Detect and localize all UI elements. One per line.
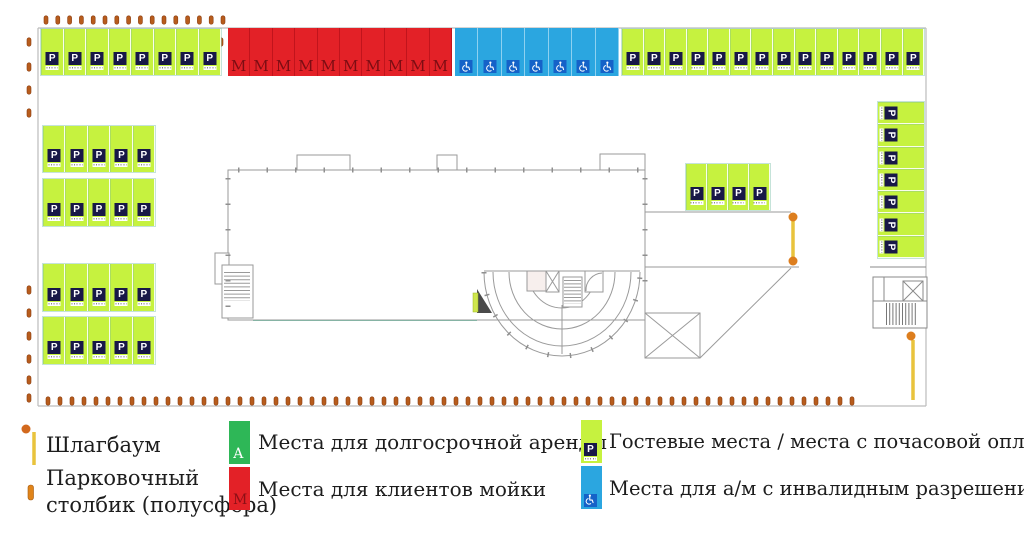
parking-spot-guest: P <box>881 29 903 75</box>
barrier-east <box>789 213 798 266</box>
parking-spot-wash: М <box>295 28 317 76</box>
parking-row-left-a1: PPPPP <box>42 125 156 173</box>
wash-letter: М <box>250 57 271 75</box>
pay-parking-icon: P <box>648 52 661 70</box>
parking-row-carwash: ММММММММММ <box>228 28 452 76</box>
pay-parking-icon: P <box>48 149 61 167</box>
parking-spot-disabled <box>455 28 478 76</box>
parking-row-mid-guest: PPPP <box>685 163 771 211</box>
pay-parking-icon: P <box>753 187 766 205</box>
pay-parking-icon: P <box>48 203 61 221</box>
pay-parking-icon: P <box>880 240 898 253</box>
pay-parking-icon: P <box>880 218 898 231</box>
pay-parking-icon: P <box>113 52 126 70</box>
pay-parking-icon: P <box>136 52 149 70</box>
parking-spot-guest: P <box>65 317 87 364</box>
pay-parking-icon: P <box>777 52 790 70</box>
parking-spot-guest: P <box>41 29 64 75</box>
parking-spot-guest: P <box>859 29 881 75</box>
parking-spot-guest: P <box>622 29 644 75</box>
pay-parking-icon: P <box>68 52 81 70</box>
pay-parking-icon: P <box>626 52 639 70</box>
pay-parking-icon: P <box>880 151 898 164</box>
parking-spot-guest: P <box>751 29 773 75</box>
parking-spot-wash: М <box>228 28 250 76</box>
parking-spot-guest: P <box>43 317 65 364</box>
pay-parking-icon: P <box>713 52 726 70</box>
wheelchair-icon <box>584 494 597 507</box>
pay-parking-icon: P <box>756 52 769 70</box>
rotunda <box>484 271 640 356</box>
parking-spot-guest: P <box>43 126 65 172</box>
pay-parking-icon: P <box>690 187 703 205</box>
parking-column-right-guest: PPPPPPP <box>877 101 925 259</box>
pay-parking-icon: P <box>880 196 898 209</box>
parking-spot-guest: P <box>43 264 65 311</box>
parking-spot-guest: P <box>88 317 110 364</box>
entrance-ramp <box>477 289 492 313</box>
parking-spot-disabled <box>549 28 572 76</box>
parking-spot-guest: P <box>43 179 65 226</box>
wash-letter: М <box>233 492 247 508</box>
parking-row-top-left-guest: PPPPPPPP <box>40 28 222 76</box>
bollard-icon <box>24 480 44 510</box>
wheelchair-icon <box>530 60 543 73</box>
pay-parking-icon: P <box>48 341 61 359</box>
parking-spot-guest: P <box>64 29 87 75</box>
wash-letter: М <box>385 57 406 75</box>
wash-letter: М <box>430 57 451 75</box>
parking-spot-guest: P <box>154 29 177 75</box>
legend-rental-label: Места для долгосрочной аренды <box>258 430 607 454</box>
pay-parking-icon: P <box>158 52 171 70</box>
wall-ticks <box>228 170 645 310</box>
wash-letter: М <box>273 57 294 75</box>
parking-row-disabled <box>455 28 619 76</box>
wheelchair-icon <box>483 60 496 73</box>
parking-spot-guest: P <box>687 29 709 75</box>
parking-spot-guest: P <box>773 29 795 75</box>
parking-spot-guest: P <box>65 264 87 311</box>
parking-spot-guest: P <box>878 147 924 169</box>
pay-parking-icon: P <box>820 52 833 70</box>
lot-boundary <box>38 28 926 406</box>
parking-spot-wash: М <box>385 28 407 76</box>
parking-spot-guest: P <box>88 264 110 311</box>
east-lane <box>645 212 799 358</box>
legend-bollard-label-line1: Парковочный <box>46 466 199 490</box>
pay-parking-icon: P <box>732 187 745 205</box>
wash-letter: М <box>295 57 316 75</box>
pay-parking-icon: P <box>115 203 128 221</box>
parking-map: PPPPPPPP ММММММММММ PPPPPPPPPPPPPP PPPPP… <box>0 0 1024 538</box>
legend-guest-label: Гостевые места / места с почасовой оплат… <box>609 430 1024 453</box>
pay-parking-icon: P <box>691 52 704 70</box>
parking-spot-guest: P <box>665 29 687 75</box>
parking-spot-disabled <box>502 28 525 76</box>
pay-parking-icon: P <box>880 129 898 142</box>
wheelchair-icon <box>553 60 566 73</box>
pay-parking-icon: P <box>137 203 150 221</box>
parking-spot-wash: М <box>273 28 295 76</box>
pay-parking-icon: P <box>115 149 128 167</box>
parking-spot-guest: P <box>838 29 860 75</box>
parking-spot-guest: P <box>707 164 728 210</box>
parking-spot-guest: P <box>110 264 132 311</box>
pay-parking-icon: P <box>70 203 83 221</box>
disabled-swatch <box>581 466 602 509</box>
parking-spot-wash: М <box>340 28 362 76</box>
parking-spot-guest: P <box>749 164 770 210</box>
pay-parking-icon: P <box>880 107 898 120</box>
pay-parking-icon: P <box>93 341 106 359</box>
wheelchair-icon <box>507 60 520 73</box>
parking-spot-guest: P <box>878 236 924 258</box>
parking-spot-wash: М <box>250 28 272 76</box>
parking-spot-guest: P <box>133 264 155 311</box>
guest-swatch: P <box>581 420 602 463</box>
legend-wash-label: Места для клиентов мойки <box>258 477 546 501</box>
wheelchair-icon <box>600 60 613 73</box>
pay-parking-icon: P <box>584 443 597 461</box>
parking-spot-guest: P <box>110 317 132 364</box>
pay-parking-icon: P <box>93 203 106 221</box>
parking-spot-guest: P <box>878 102 924 124</box>
pay-parking-icon: P <box>93 288 106 306</box>
rental-swatch: А <box>229 421 250 464</box>
pay-parking-icon: P <box>93 149 106 167</box>
parking-spot-guest: P <box>878 191 924 213</box>
parking-spot-guest: P <box>199 29 222 75</box>
pay-parking-icon: P <box>115 341 128 359</box>
pay-parking-icon: P <box>203 52 216 70</box>
wash-letter: М <box>407 57 428 75</box>
parking-spot-wash: М <box>407 28 429 76</box>
rotunda-rooms <box>527 271 603 307</box>
pay-parking-icon: P <box>880 173 898 186</box>
parking-spot-guest: P <box>176 29 199 75</box>
parking-row-left-b2: PPPPP <box>42 316 156 365</box>
wash-letter: М <box>340 57 361 75</box>
pay-parking-icon: P <box>46 52 59 70</box>
wash-swatch: М <box>229 467 250 510</box>
parking-spot-guest: P <box>903 29 925 75</box>
pay-parking-icon: P <box>711 187 724 205</box>
parking-spot-guest: P <box>878 169 924 191</box>
parking-spot-guest: P <box>86 29 109 75</box>
pay-parking-icon: P <box>70 149 83 167</box>
pay-parking-icon: P <box>137 341 150 359</box>
wheelchair-icon <box>577 60 590 73</box>
pay-parking-icon: P <box>70 341 83 359</box>
wash-letter: М <box>318 57 339 75</box>
pay-parking-icon: P <box>907 52 920 70</box>
wash-letter: М <box>228 57 249 75</box>
building-outline <box>215 154 645 320</box>
rental-letter: А <box>233 446 244 462</box>
legend-disabled-label: Места для а/м с инвалидным разрешением <box>609 477 1024 500</box>
parking-spot-guest: P <box>728 164 749 210</box>
pay-parking-icon: P <box>115 288 128 306</box>
parking-spot-wash: М <box>430 28 452 76</box>
pay-parking-icon: P <box>885 52 898 70</box>
parking-spot-guest: P <box>88 179 110 226</box>
parking-spot-disabled <box>525 28 548 76</box>
parking-spot-guest: P <box>109 29 132 75</box>
pay-parking-icon: P <box>669 52 682 70</box>
parking-spot-wash: М <box>318 28 340 76</box>
parking-spot-disabled <box>596 28 619 76</box>
parking-spot-guest: P <box>644 29 666 75</box>
pay-parking-icon: P <box>734 52 747 70</box>
parking-spot-guest: P <box>878 213 924 235</box>
pay-parking-icon: P <box>842 52 855 70</box>
parking-spot-guest: P <box>110 126 132 172</box>
parking-spot-guest: P <box>730 29 752 75</box>
pay-parking-icon: P <box>799 52 812 70</box>
pay-parking-icon: P <box>48 288 61 306</box>
right-staircase <box>870 267 927 328</box>
parking-spot-guest: P <box>65 126 87 172</box>
pay-parking-icon: P <box>864 52 877 70</box>
parking-row-left-b1: PPPPP <box>42 263 156 312</box>
parking-spot-guest: P <box>110 179 132 226</box>
pay-parking-icon: P <box>91 52 104 70</box>
parking-spot-guest: P <box>133 317 155 364</box>
parking-row-left-a2: PPPPP <box>42 178 156 227</box>
parking-spot-guest: P <box>88 126 110 172</box>
parking-spot-guest: P <box>708 29 730 75</box>
legend-barrier-label: Шлагбаум <box>46 433 161 457</box>
wash-letter: М <box>362 57 383 75</box>
parking-spot-guest: P <box>65 179 87 226</box>
parking-spot-guest: P <box>795 29 817 75</box>
parking-spot-guest: P <box>816 29 838 75</box>
parking-spot-wash: М <box>362 28 384 76</box>
wheelchair-icon <box>460 60 473 73</box>
parking-row-top-right-guest: PPPPPPPPPPPPPP <box>621 28 925 76</box>
entrance-marker <box>473 293 478 312</box>
pay-parking-icon: P <box>137 149 150 167</box>
parking-spot-guest: P <box>131 29 154 75</box>
barrier-southeast <box>907 332 916 401</box>
parking-spot-disabled <box>572 28 595 76</box>
parking-spot-guest: P <box>133 179 155 226</box>
pay-parking-icon: P <box>70 288 83 306</box>
pay-parking-icon: P <box>137 288 150 306</box>
parking-spot-guest: P <box>686 164 707 210</box>
parking-spot-disabled <box>478 28 501 76</box>
parking-spot-guest: P <box>878 124 924 146</box>
parking-spot-guest: P <box>133 126 155 172</box>
pay-parking-icon: P <box>181 52 194 70</box>
